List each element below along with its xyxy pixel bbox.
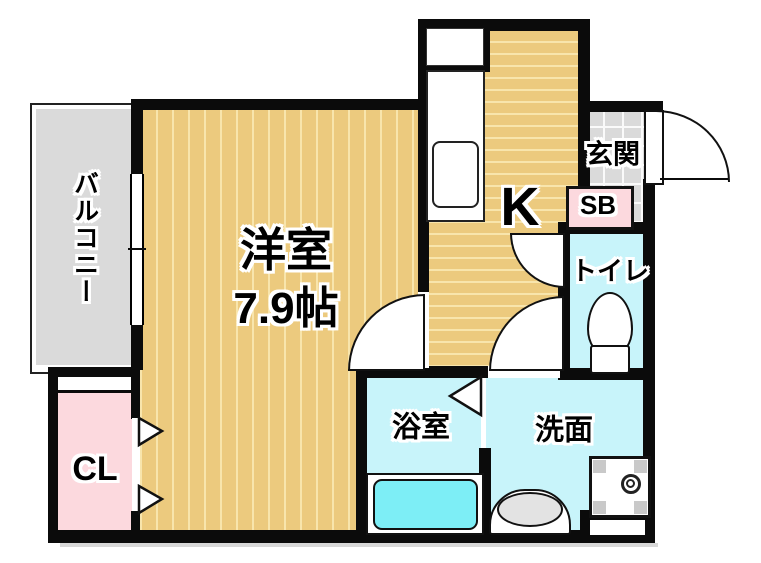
wall-western-room-top <box>131 99 429 110</box>
bathtub <box>373 479 478 530</box>
western-room-size-label: 7.9帖 <box>233 287 338 331</box>
washer-corner <box>634 460 647 473</box>
wall-western-room-left-lower <box>131 324 143 370</box>
kitchen-label: K <box>501 180 540 234</box>
bathroom-folding-door-icon <box>446 374 484 420</box>
balcony-label: バルコニー <box>72 171 97 306</box>
washer-corner <box>593 501 606 514</box>
bathroom-label: 浴室 <box>392 414 450 443</box>
washer-corner <box>634 501 647 514</box>
washer-faucet-dot <box>626 479 635 488</box>
wall-closet-left <box>48 367 58 543</box>
closet-folding-door-icon-top <box>136 415 166 448</box>
toilet-tank <box>590 345 630 374</box>
wall-western-room-left-upper <box>131 99 143 176</box>
wall-bottom-shadow <box>60 543 658 547</box>
washer-step-notch <box>590 520 645 535</box>
washroom-sink-basin <box>497 492 563 527</box>
wall-closet-right-upper <box>131 375 140 419</box>
toilet-label: トイレ <box>571 258 649 284</box>
wall-closet-top <box>48 367 140 377</box>
washing-machine <box>589 456 651 518</box>
kitchen-niche <box>426 28 484 66</box>
entrance-door-open-line <box>660 178 728 180</box>
closet-label: CL <box>72 452 117 486</box>
entrance-door-arc <box>656 110 730 182</box>
floorplan: バルコニー 洋室 7.9帖 K 玄関 SB トイレ 浴室 洗面 CL <box>0 0 761 563</box>
western-room-floor-lower <box>140 368 357 533</box>
washroom-label: 洗面 <box>535 417 593 446</box>
closet-top-band <box>56 377 133 390</box>
window-center-tick <box>128 248 146 250</box>
shoe-box-label: SB <box>580 192 616 218</box>
kitchen-sink <box>432 141 479 208</box>
western-room-label: 洋室 <box>240 227 332 273</box>
washer-corner <box>593 460 606 473</box>
entrance-label: 玄関 <box>586 142 640 169</box>
closet-folding-door-icon-bottom <box>136 483 166 516</box>
